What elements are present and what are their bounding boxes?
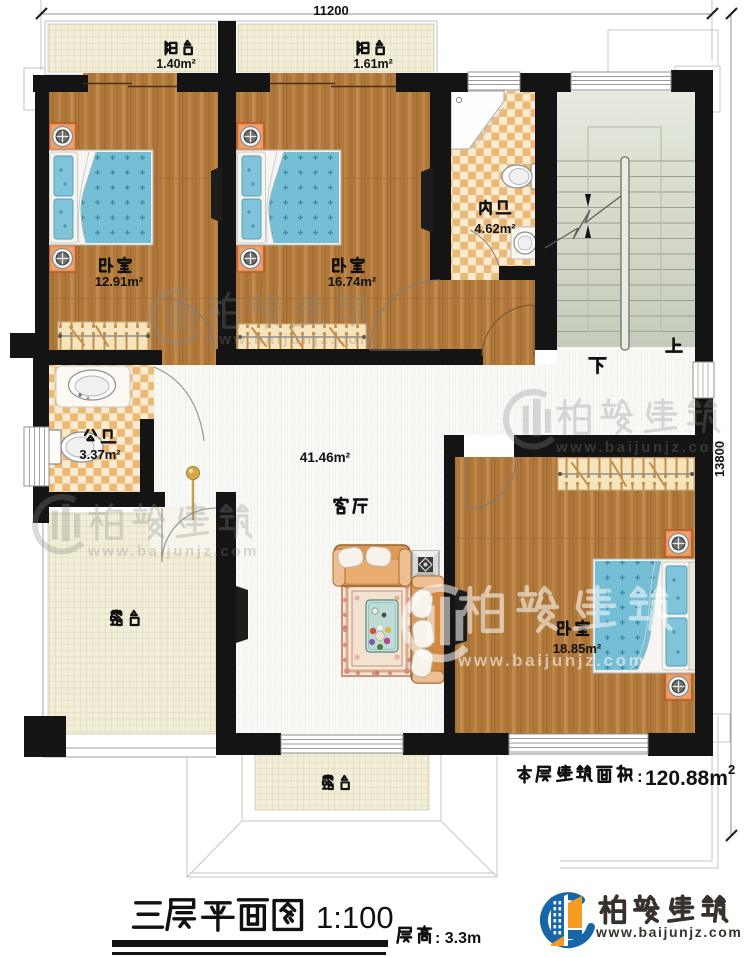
- svg-text:www.baijunjz.com: www.baijunjz.com: [555, 439, 727, 456]
- svg-text:1.61m²: 1.61m²: [353, 57, 393, 71]
- svg-text:2: 2: [728, 762, 735, 777]
- svg-text:4.62m²: 4.62m²: [474, 221, 516, 236]
- svg-text:www.baijunjz.com: www.baijunjz.com: [204, 331, 376, 348]
- svg-text:11200: 11200: [313, 3, 348, 18]
- svg-text:41.46m²: 41.46m²: [300, 450, 351, 465]
- svg-text:1.40m²: 1.40m²: [156, 57, 196, 71]
- svg-text:3.37m²: 3.37m²: [79, 447, 121, 462]
- svg-text:: 3.3m: : 3.3m: [435, 930, 481, 947]
- svg-text:www.baijunjz.com: www.baijunjz.com: [457, 651, 646, 670]
- svg-text:16.74m²: 16.74m²: [328, 274, 377, 289]
- svg-text:1:100: 1:100: [316, 900, 394, 935]
- svg-text:www.baijunjz.com: www.baijunjz.com: [595, 924, 742, 940]
- svg-text:120.88m: 120.88m: [645, 767, 728, 790]
- svg-text:www.baijunjz.com: www.baijunjz.com: [87, 543, 259, 560]
- svg-text::: :: [637, 767, 643, 786]
- svg-text:12.91m²: 12.91m²: [95, 274, 144, 289]
